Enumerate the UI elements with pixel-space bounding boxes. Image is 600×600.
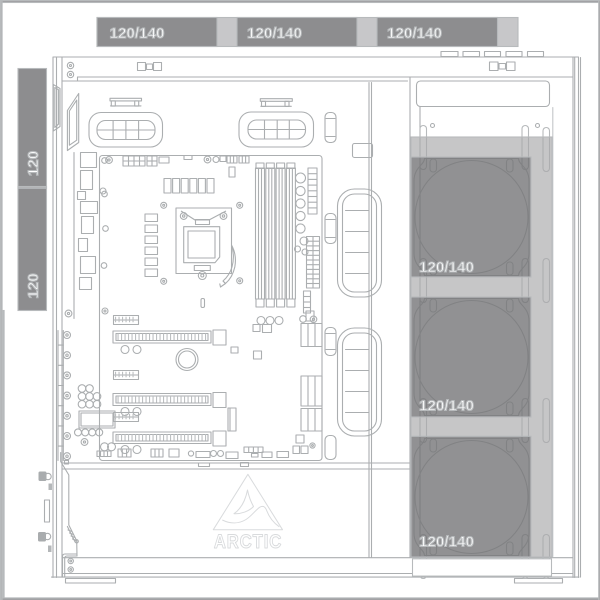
svg-text:ARCTIC: ARCTIC [214,531,282,552]
svg-text:120/140: 120/140 [387,25,442,42]
svg-text:120/140: 120/140 [419,259,474,276]
svg-text:120/140: 120/140 [419,533,474,550]
svg-text:120: 120 [25,273,42,298]
svg-text:120: 120 [25,151,42,176]
svg-text:120/140: 120/140 [110,25,165,42]
svg-text:120/140: 120/140 [419,397,474,414]
svg-text:120/140: 120/140 [247,25,302,42]
